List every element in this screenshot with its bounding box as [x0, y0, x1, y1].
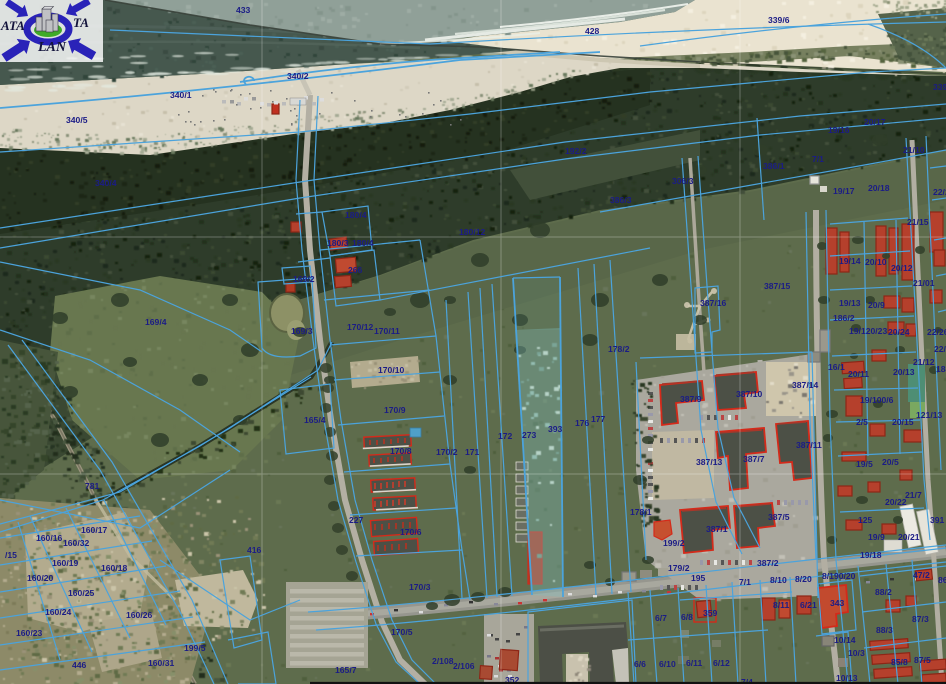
svg-text:428: 428 — [585, 26, 600, 36]
svg-text:179/2: 179/2 — [668, 563, 690, 573]
svg-text:121/13: 121/13 — [916, 410, 943, 420]
svg-text:170/12: 170/12 — [347, 322, 374, 332]
svg-text:160/20: 160/20 — [27, 573, 54, 583]
svg-text:170/2: 170/2 — [436, 447, 458, 457]
svg-text:7/1: 7/1 — [812, 154, 824, 164]
svg-text:170/11: 170/11 — [374, 326, 400, 336]
svg-text:178/1: 178/1 — [630, 507, 652, 517]
svg-text:387/2: 387/2 — [757, 558, 779, 568]
svg-text:21/01: 21/01 — [913, 278, 935, 288]
svg-text:20/11: 20/11 — [848, 369, 869, 379]
svg-text:306/3: 306/3 — [672, 176, 694, 186]
svg-text:8/10: 8/10 — [770, 575, 787, 585]
svg-text:LAN: LAN — [37, 40, 67, 55]
svg-text:19/18: 19/18 — [860, 550, 882, 560]
svg-text:20/12: 20/12 — [891, 263, 913, 273]
svg-text:88/2: 88/2 — [875, 587, 892, 597]
svg-text:88/3: 88/3 — [876, 625, 893, 635]
svg-text:20/5: 20/5 — [882, 457, 899, 467]
svg-text:16/1: 16/1 — [828, 362, 845, 372]
svg-text:20/18: 20/18 — [868, 183, 890, 193]
svg-text:340/1: 340/1 — [170, 90, 192, 100]
svg-text:160/24: 160/24 — [45, 607, 72, 617]
svg-text:199/2: 199/2 — [663, 538, 685, 548]
svg-text:340/2: 340/2 — [287, 71, 309, 81]
svg-text:176: 176 — [575, 418, 590, 428]
svg-text:22/26: 22/26 — [927, 327, 946, 337]
svg-text:21/12: 21/12 — [913, 357, 935, 367]
svg-text:TA: TA — [73, 15, 89, 30]
svg-text:188: 188 — [936, 364, 946, 374]
svg-text:446: 446 — [72, 660, 87, 670]
svg-text:8/11: 8/11 — [773, 600, 789, 610]
svg-text:180/4: 180/4 — [345, 210, 367, 220]
svg-text:160/16: 160/16 — [36, 533, 63, 543]
svg-text:125: 125 — [858, 515, 873, 525]
svg-text:386/1: 386/1 — [763, 161, 785, 171]
svg-text:192/2: 192/2 — [565, 146, 587, 156]
svg-text:386/3: 386/3 — [610, 195, 632, 205]
svg-text:6/10: 6/10 — [659, 659, 676, 669]
svg-text:387/9: 387/9 — [680, 394, 702, 404]
svg-text:387/13: 387/13 — [696, 457, 723, 467]
svg-text:180/12: 180/12 — [459, 227, 486, 237]
svg-text:387/7: 387/7 — [743, 454, 765, 464]
svg-text:387/11: 387/11 — [796, 440, 822, 450]
svg-text:160/18: 160/18 — [101, 563, 128, 573]
svg-text:ATA: ATA — [0, 18, 25, 33]
svg-text:8/190/20: 8/190/20 — [822, 571, 856, 581]
svg-text:387/1: 387/1 — [706, 524, 728, 534]
svg-text:6/21: 6/21 — [800, 600, 817, 610]
svg-text:781: 781 — [85, 481, 100, 491]
svg-text:199/5: 199/5 — [184, 643, 206, 653]
svg-text:47/2: 47/2 — [913, 570, 930, 580]
svg-text:6/7: 6/7 — [655, 613, 667, 623]
svg-text:160/19: 160/19 — [52, 558, 79, 568]
svg-text:6/11: 6/11 — [686, 658, 702, 668]
svg-text:165/4: 165/4 — [304, 415, 326, 425]
svg-text:273: 273 — [522, 430, 537, 440]
svg-text:21/7: 21/7 — [905, 490, 922, 500]
svg-text:19/100/6: 19/100/6 — [860, 395, 894, 405]
svg-text:178/2: 178/2 — [608, 344, 630, 354]
svg-text:20/9: 20/9 — [868, 300, 885, 310]
svg-text:22/2: 22/2 — [933, 187, 946, 197]
svg-text:160/25: 160/25 — [68, 588, 95, 598]
svg-text:87/3: 87/3 — [912, 614, 929, 624]
svg-text:20/13: 20/13 — [893, 367, 915, 377]
svg-text:19/5: 19/5 — [856, 459, 873, 469]
svg-text:393: 393 — [548, 424, 563, 434]
svg-text:177: 177 — [591, 414, 606, 424]
svg-text:10/3: 10/3 — [848, 648, 865, 658]
svg-text:20/17: 20/17 — [864, 117, 886, 127]
svg-text:20/21: 20/21 — [898, 532, 920, 542]
svg-text:86/1: 86/1 — [938, 575, 946, 585]
svg-text:160/23: 160/23 — [16, 628, 43, 638]
svg-text:/15: /15 — [5, 550, 17, 560]
svg-text:6/12: 6/12 — [713, 658, 730, 668]
svg-text:387/10: 387/10 — [736, 389, 763, 399]
svg-text:339/: 339/ — [933, 82, 946, 92]
svg-text:170/10: 170/10 — [378, 365, 405, 375]
svg-text:87/5: 87/5 — [914, 655, 931, 665]
svg-text:160/32: 160/32 — [63, 538, 90, 548]
svg-text:387/14: 387/14 — [792, 380, 819, 390]
svg-text:21/10: 21/10 — [903, 145, 925, 155]
svg-text:7/1: 7/1 — [739, 577, 751, 587]
svg-text:266: 266 — [348, 265, 363, 275]
svg-text:170/8: 170/8 — [390, 446, 412, 456]
svg-text:169/2: 169/2 — [293, 274, 315, 284]
svg-text:172: 172 — [498, 431, 513, 441]
svg-text:180/3: 180/3 — [327, 238, 349, 248]
svg-text:169/3: 169/3 — [291, 326, 313, 336]
svg-text:20/24: 20/24 — [888, 327, 910, 337]
svg-text:19/9: 19/9 — [868, 532, 885, 542]
svg-text:160/31: 160/31 — [148, 658, 175, 668]
svg-text:160/17: 160/17 — [81, 525, 108, 535]
svg-text:2/106: 2/106 — [453, 661, 475, 671]
svg-text:359: 359 — [703, 608, 718, 618]
svg-text:387/16: 387/16 — [700, 298, 727, 308]
svg-text:170/6: 170/6 — [400, 527, 422, 537]
svg-text:387/15: 387/15 — [764, 281, 791, 291]
svg-text:387/5: 387/5 — [768, 512, 790, 522]
svg-text:433: 433 — [236, 5, 251, 15]
svg-text:19/17: 19/17 — [833, 186, 855, 196]
svg-text:8/20: 8/20 — [795, 574, 812, 584]
svg-text:19/13: 19/13 — [839, 298, 861, 308]
svg-text:195: 195 — [691, 573, 706, 583]
svg-text:170/5: 170/5 — [391, 627, 413, 637]
svg-text:6/6: 6/6 — [634, 659, 646, 669]
svg-text:186/2: 186/2 — [833, 313, 855, 323]
svg-text:20/10: 20/10 — [865, 257, 887, 267]
svg-text:19/120/23: 19/120/23 — [849, 326, 887, 336]
svg-text:22/3: 22/3 — [934, 344, 946, 354]
svg-text:21/15: 21/15 — [907, 217, 929, 227]
svg-text:416: 416 — [247, 545, 262, 555]
svg-text:391: 391 — [930, 515, 945, 525]
svg-text:340/5: 340/5 — [66, 115, 88, 125]
svg-text:227: 227 — [349, 515, 364, 525]
svg-text:339/6: 339/6 — [768, 15, 790, 25]
svg-text:10/14: 10/14 — [834, 635, 856, 645]
svg-text:20/15: 20/15 — [892, 417, 914, 427]
svg-text:19/14: 19/14 — [839, 256, 861, 266]
svg-text:165/7: 165/7 — [335, 665, 357, 675]
svg-text:169/4: 169/4 — [145, 317, 167, 327]
svg-text:20/22: 20/22 — [885, 497, 907, 507]
svg-text:85/8: 85/8 — [891, 657, 908, 667]
svg-text:19/16: 19/16 — [828, 125, 850, 135]
svg-text:10/13: 10/13 — [836, 673, 858, 683]
svg-text:2/5: 2/5 — [856, 417, 868, 427]
svg-text:170/3: 170/3 — [409, 582, 431, 592]
svg-text:160/26: 160/26 — [126, 610, 153, 620]
svg-text:6/8: 6/8 — [681, 612, 693, 622]
svg-text:171: 171 — [465, 447, 480, 457]
svg-text:170/9: 170/9 — [384, 405, 406, 415]
svg-text:340/4: 340/4 — [95, 178, 117, 188]
svg-text:2/108: 2/108 — [432, 656, 454, 666]
svg-text:343: 343 — [830, 598, 845, 608]
svg-text:180/4: 180/4 — [352, 238, 374, 248]
